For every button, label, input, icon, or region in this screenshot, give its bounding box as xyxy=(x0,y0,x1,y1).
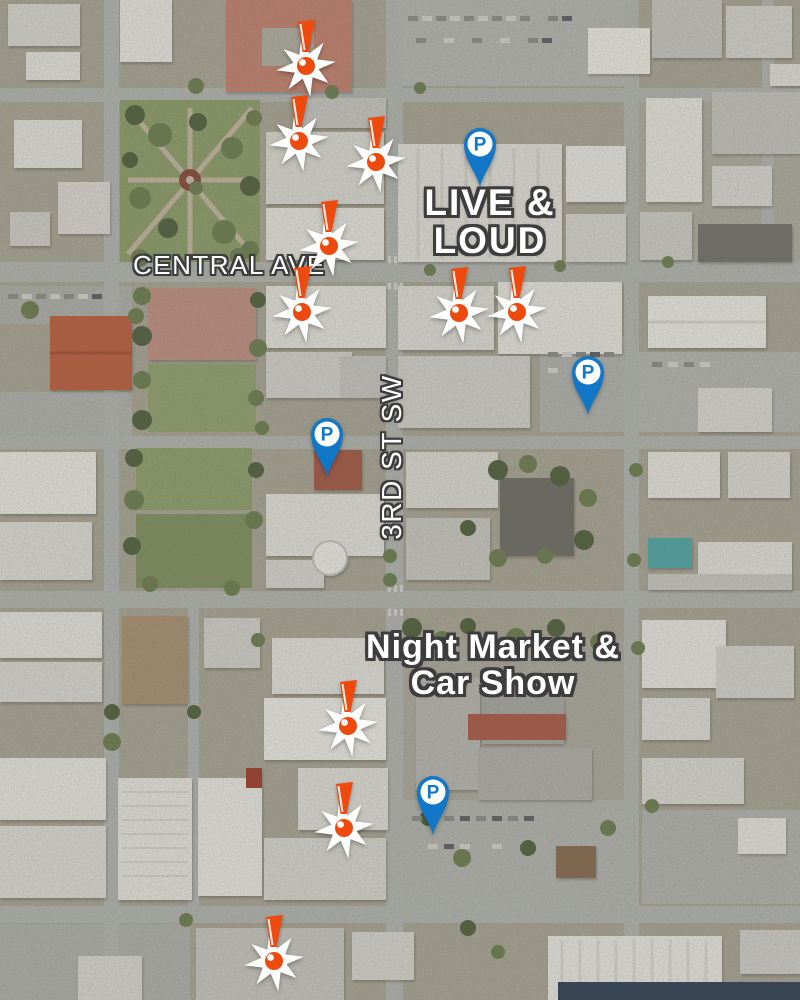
exclamation-burst-icon xyxy=(232,875,316,991)
map-canvas[interactable]: CENTRAL AVE 3RD ST SW LIVE & LOUD Night … xyxy=(0,0,800,1000)
alert-marker[interactable] xyxy=(302,742,386,863)
parking-pin-icon: P xyxy=(570,355,606,417)
exclamation-burst-icon xyxy=(475,226,559,342)
exclamation-burst-icon xyxy=(302,742,386,858)
alert-marker[interactable] xyxy=(260,226,344,347)
parking-marker[interactable]: P xyxy=(415,775,451,842)
parking-pin-icon: P xyxy=(309,417,345,479)
parking-pin-icon: P xyxy=(415,775,451,837)
parking-marker[interactable]: P xyxy=(462,127,498,194)
exclamation-burst-icon xyxy=(257,55,341,171)
alert-marker[interactable] xyxy=(475,226,559,347)
exclamation-burst-icon xyxy=(260,226,344,342)
alert-marker[interactable] xyxy=(232,875,316,996)
svg-text:P: P xyxy=(474,135,487,156)
alert-marker[interactable] xyxy=(257,55,341,176)
parking-marker[interactable]: P xyxy=(570,355,606,422)
svg-text:P: P xyxy=(321,425,334,446)
parking-marker[interactable]: P xyxy=(309,417,345,484)
exclamation-burst-icon xyxy=(306,640,390,756)
parking-pin-icon: P xyxy=(462,127,498,189)
svg-text:P: P xyxy=(427,783,440,804)
svg-text:P: P xyxy=(582,363,595,384)
